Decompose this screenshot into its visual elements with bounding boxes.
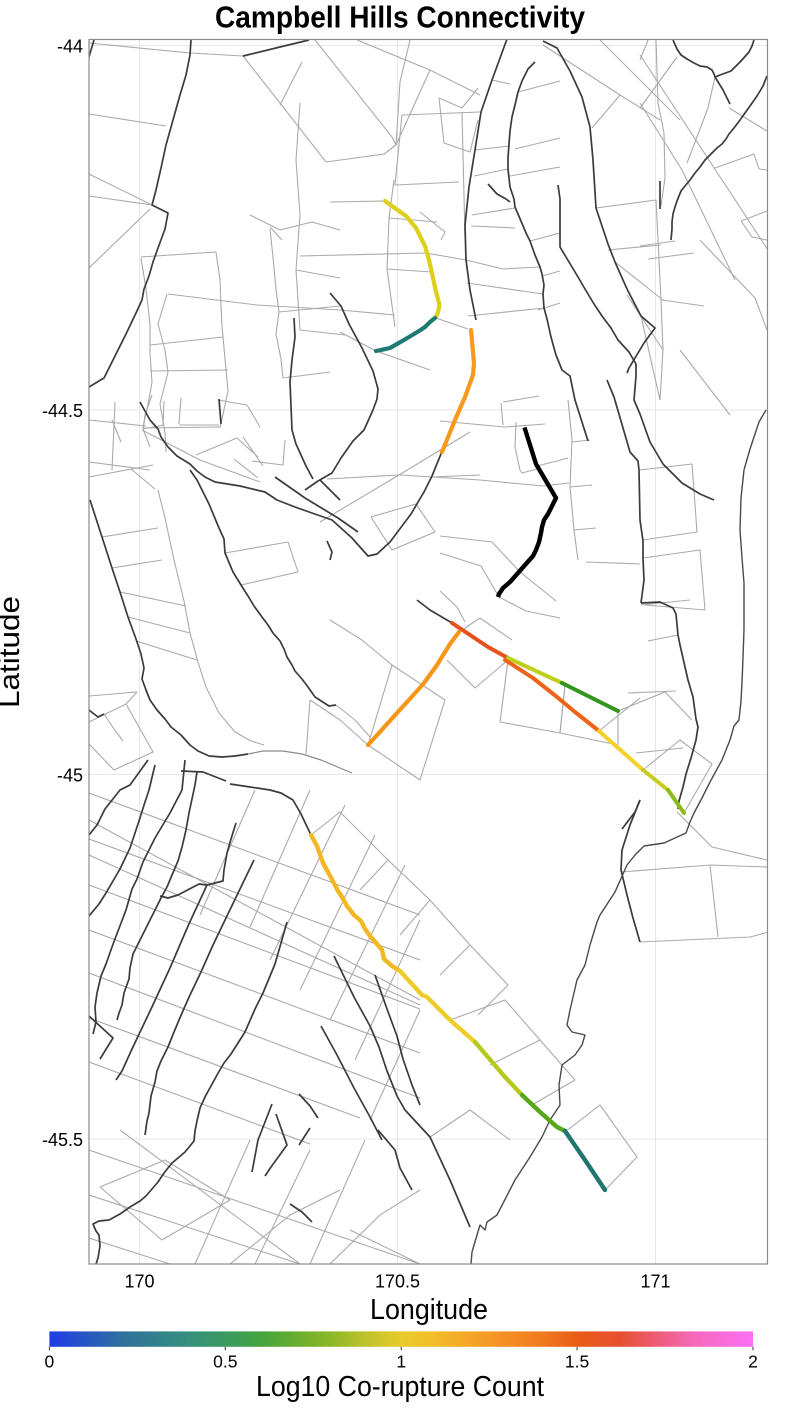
svg-text:2: 2 xyxy=(748,1352,758,1372)
svg-text:-45: -45 xyxy=(57,766,83,786)
svg-text:170.5: 170.5 xyxy=(375,1272,420,1292)
svg-text:171: 171 xyxy=(640,1272,670,1292)
svg-text:-44: -44 xyxy=(57,37,83,57)
svg-text:1: 1 xyxy=(396,1352,406,1372)
svg-text:1.5: 1.5 xyxy=(565,1352,589,1372)
svg-text:0: 0 xyxy=(45,1352,55,1372)
svg-text:-44.5: -44.5 xyxy=(42,401,83,421)
svg-text:Campbell Hills Connectivity: Campbell Hills Connectivity xyxy=(215,0,586,35)
svg-text:-45.5: -45.5 xyxy=(42,1130,83,1150)
svg-text:Longitude: Longitude xyxy=(370,1294,488,1326)
svg-text:170: 170 xyxy=(124,1272,154,1292)
svg-text:0.5: 0.5 xyxy=(213,1352,237,1372)
svg-text:Latitude: Latitude xyxy=(0,596,26,708)
svg-text:Log10 Co-rupture Count: Log10 Co-rupture Count xyxy=(256,1371,544,1403)
